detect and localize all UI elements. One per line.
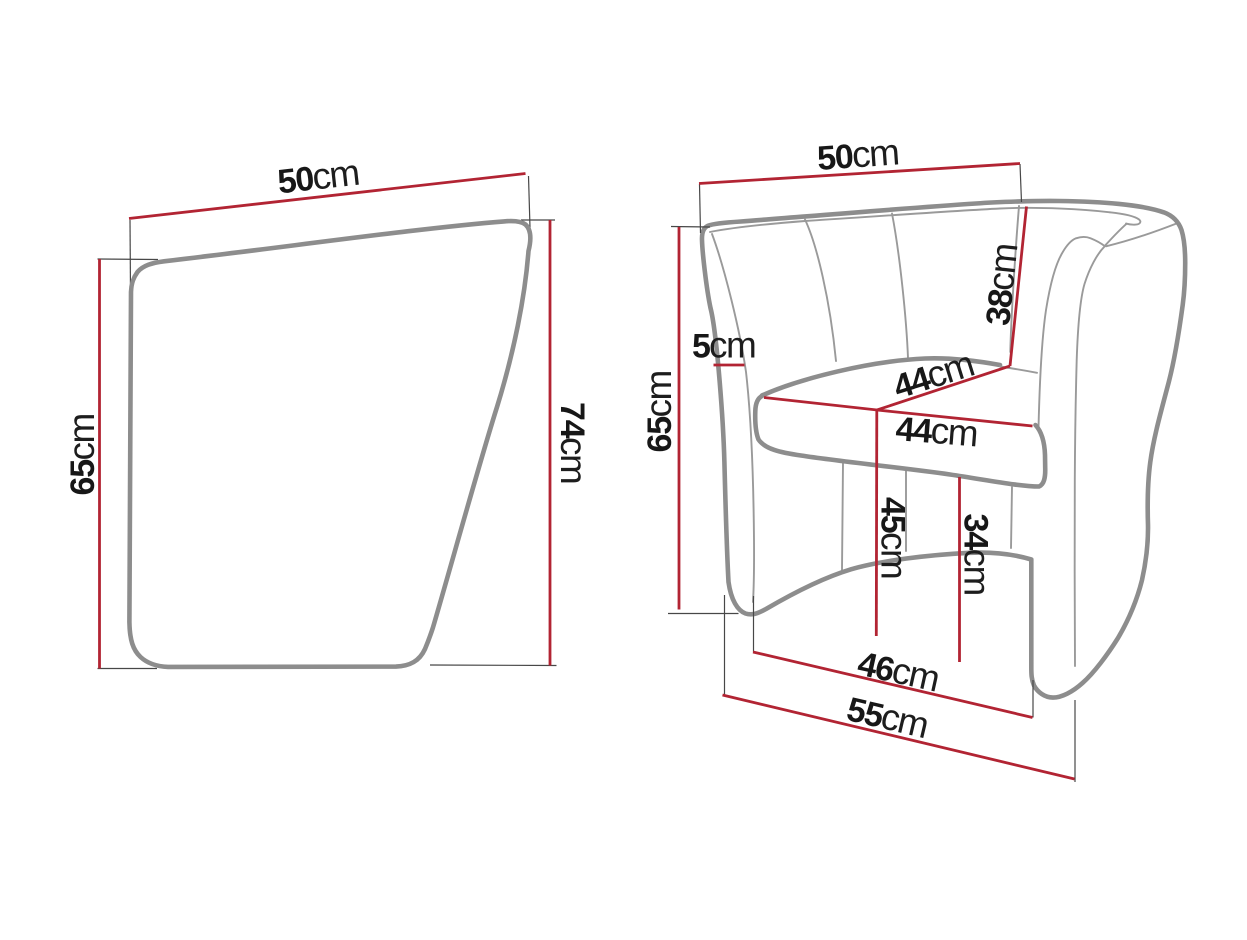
svg-text:cm: cm [851,131,900,175]
svg-text:65: 65 [641,417,679,453]
svg-text:cm: cm [61,414,102,460]
svg-text:38: 38 [979,288,1021,327]
svg-text:45: 45 [874,497,912,533]
svg-text:50: 50 [276,160,316,202]
svg-text:44: 44 [894,410,934,451]
svg-text:65: 65 [64,460,102,496]
svg-text:34: 34 [957,514,995,551]
svg-text:74: 74 [553,402,591,439]
svg-text:cm: cm [638,371,679,417]
svg-text:cm: cm [874,532,915,578]
svg-text:50: 50 [816,138,854,178]
svg-text:cm: cm [980,242,1026,292]
svg-text:cm: cm [310,152,361,198]
svg-text:5: 5 [692,328,710,366]
svg-text:cm: cm [553,437,594,483]
svg-text:cm: cm [709,325,755,366]
svg-text:cm: cm [929,410,978,455]
svg-text:cm: cm [957,549,998,595]
